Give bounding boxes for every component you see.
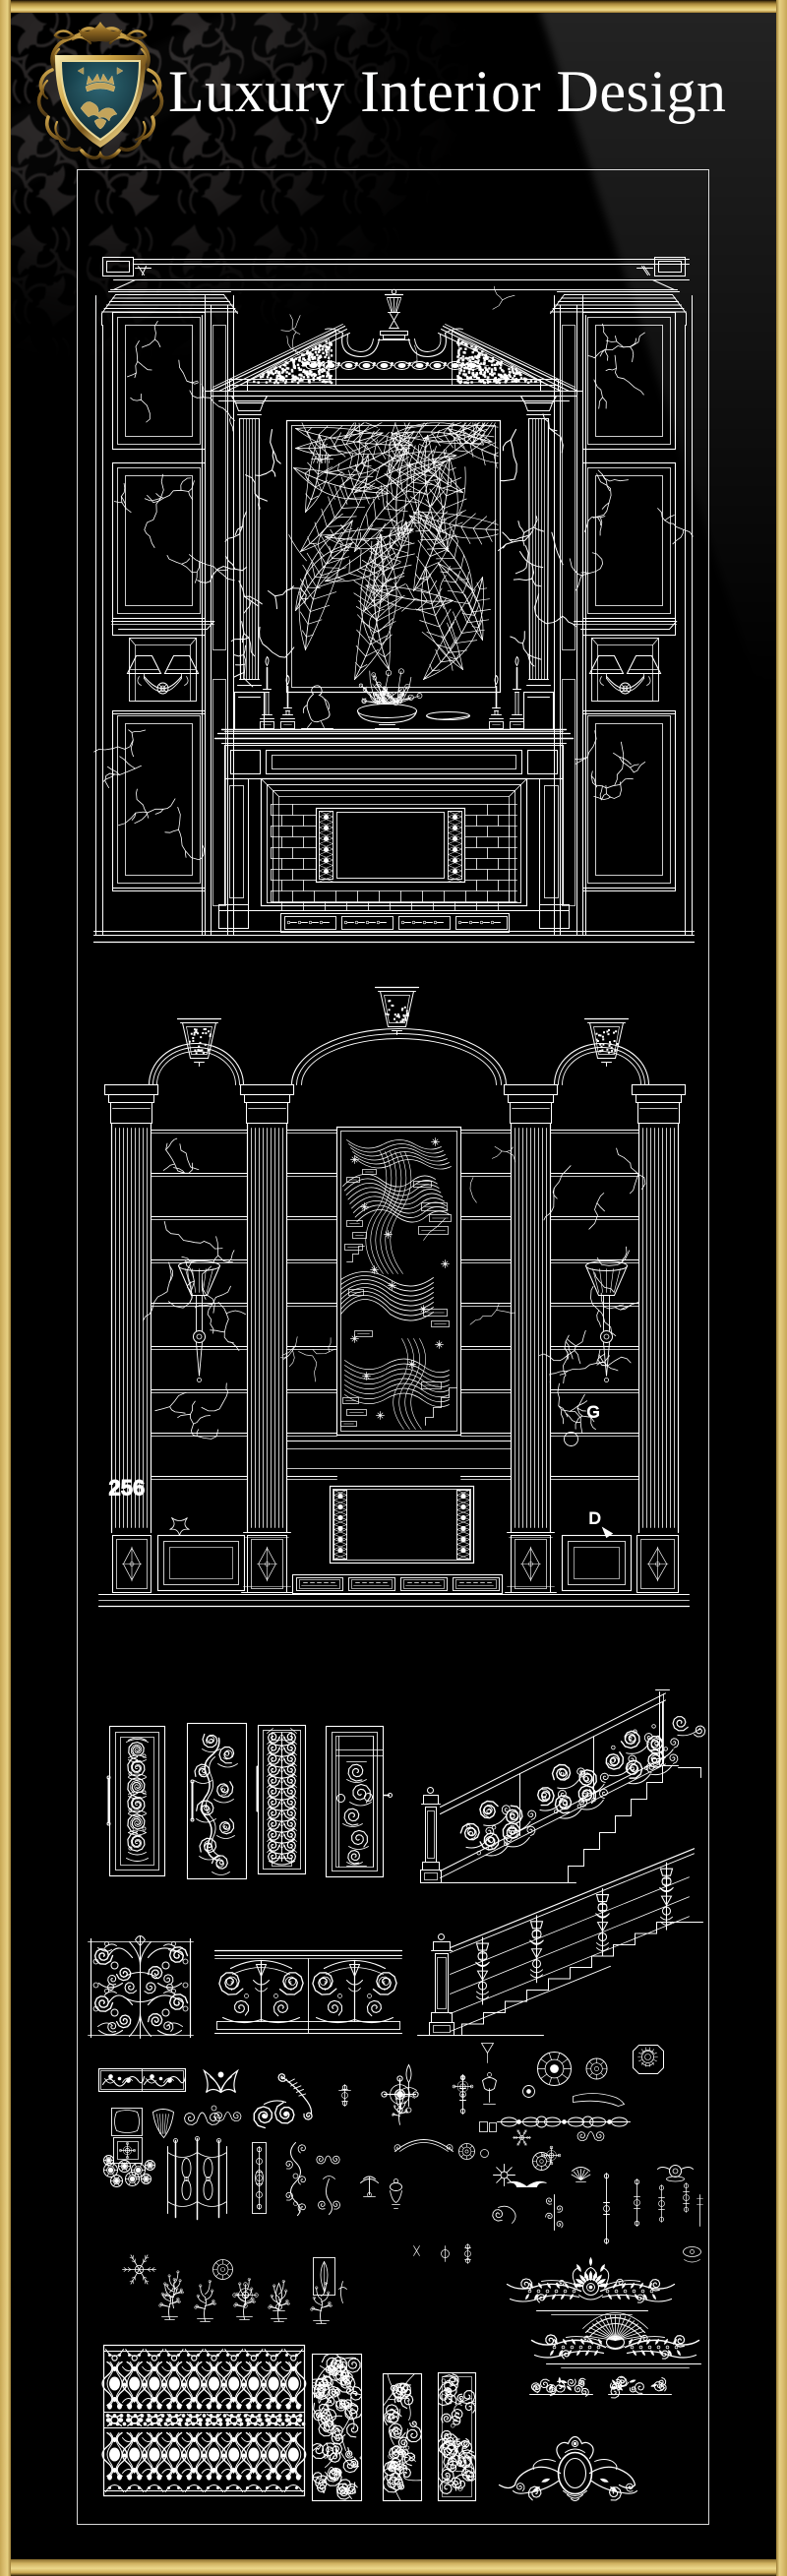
svg-text:D: D [589, 1509, 601, 1528]
svg-text:G: G [587, 1403, 600, 1422]
svg-text:256: 256 [109, 1476, 146, 1501]
